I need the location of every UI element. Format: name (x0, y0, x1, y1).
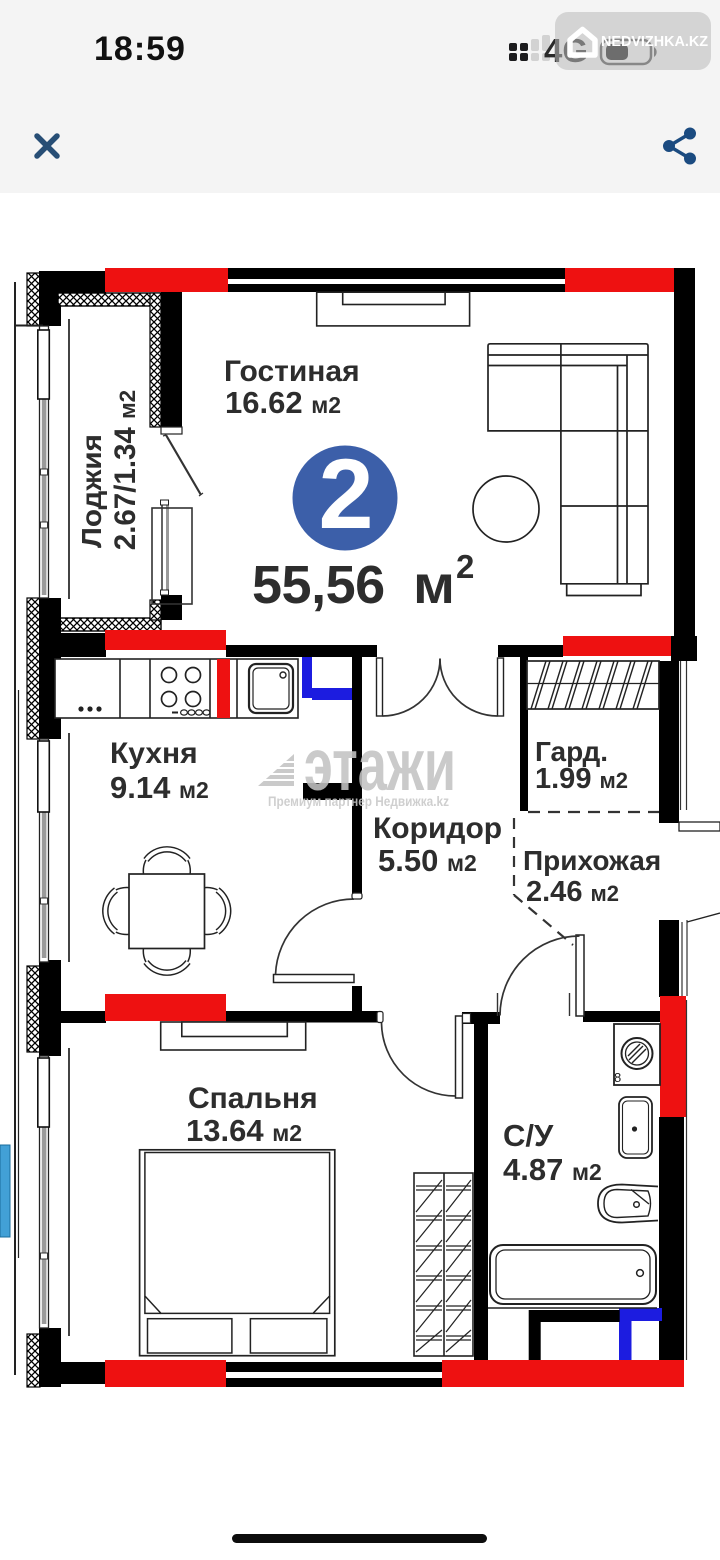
svg-text:55,56: 55,56 (252, 555, 385, 615)
svg-text:м: м (413, 555, 455, 615)
svg-text:18:59: 18:59 (94, 30, 186, 68)
svg-text:Прихожая: Прихожая (523, 845, 661, 876)
svg-text:2.46 м2: 2.46 м2 (526, 876, 619, 908)
svg-text:8: 8 (614, 1070, 621, 1085)
svg-text:Премиум партнер Недвижка.kz: Премиум партнер Недвижка.kz (268, 793, 449, 809)
svg-text:2: 2 (456, 548, 474, 585)
svg-text:4.87 м2: 4.87 м2 (503, 1152, 602, 1187)
svg-text:2: 2 (318, 438, 373, 549)
svg-text:Кухня: Кухня (110, 737, 198, 770)
svg-text:NEDVIZHKA.KZ: NEDVIZHKA.KZ (601, 34, 708, 50)
svg-text:С/У: С/У (503, 1118, 554, 1153)
svg-text:Спальня: Спальня (188, 1082, 318, 1115)
svg-text:9.14 м2: 9.14 м2 (110, 770, 209, 805)
svg-text:Лоджия: Лоджия (76, 434, 107, 548)
svg-text:13.64 м2: 13.64 м2 (186, 1113, 302, 1148)
svg-text:16.62 м2: 16.62 м2 (225, 385, 341, 420)
svg-text:Гостиная: Гостиная (224, 355, 360, 388)
svg-text:1.99 м2: 1.99 м2 (535, 763, 628, 795)
svg-text:Коридор: Коридор (373, 812, 502, 845)
svg-text:2.67/1.34 м2: 2.67/1.34 м2 (109, 390, 142, 550)
svg-text:5.50 м2: 5.50 м2 (378, 843, 477, 878)
